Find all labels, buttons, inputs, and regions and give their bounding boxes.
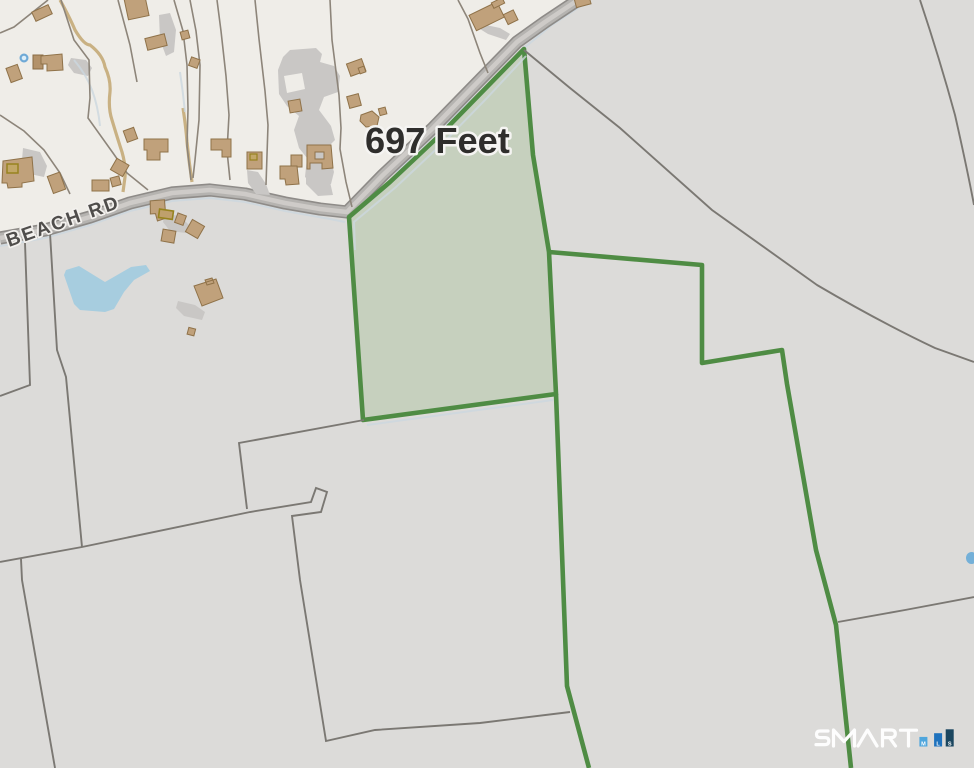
svg-text:M: M <box>921 741 926 747</box>
svg-text:S: S <box>948 741 952 747</box>
svg-text:697 Feet: 697 Feet <box>365 120 510 161</box>
svg-text:L: L <box>936 741 940 747</box>
